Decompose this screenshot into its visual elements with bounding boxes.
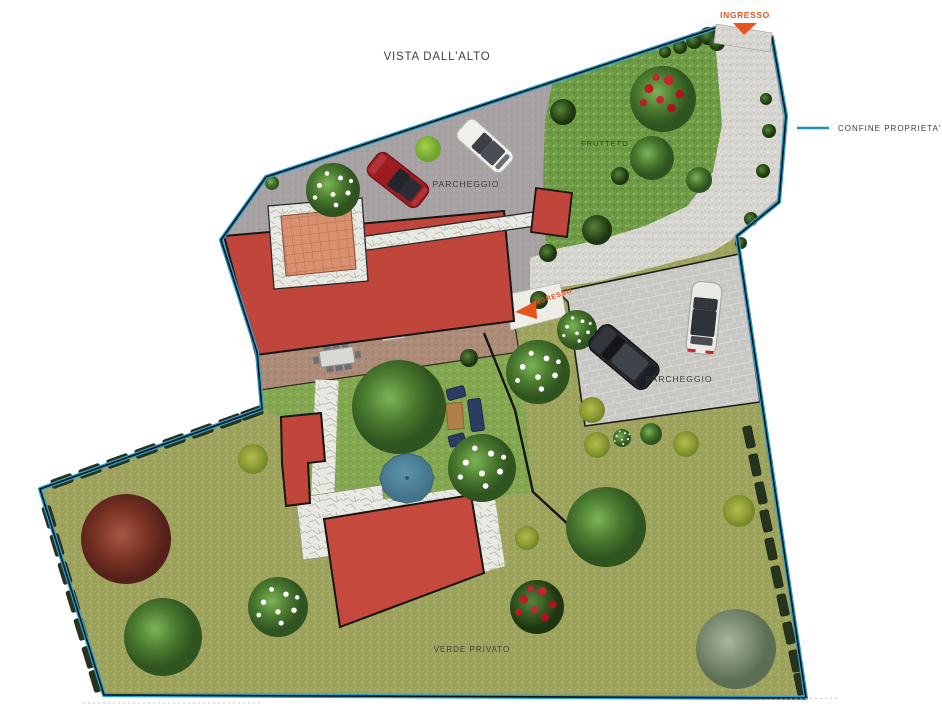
- garage-roof: [531, 188, 572, 237]
- tree: [723, 495, 755, 527]
- tree: [630, 136, 674, 180]
- road-shrub: [762, 124, 776, 138]
- patio-terracotta: [281, 209, 356, 276]
- page-title: VISTA DALL'ALTO: [384, 51, 491, 63]
- pool-drain: [405, 476, 409, 480]
- entrance-top-label: INGRESSO: [720, 10, 770, 20]
- flower-bush: [306, 163, 360, 217]
- flower-bush: [613, 429, 631, 447]
- tree: [415, 136, 441, 162]
- tree: [550, 99, 576, 125]
- flower-bush: [506, 340, 570, 404]
- tree: [81, 494, 171, 584]
- tree: [582, 215, 612, 245]
- parking-right-label: PARCHEGGIO: [646, 374, 713, 384]
- tree: [611, 167, 629, 185]
- flower-bush: [248, 577, 308, 637]
- shrub: [460, 349, 478, 367]
- tree: [515, 526, 539, 550]
- orchard-label: FRUTTETO: [581, 139, 629, 148]
- legend-label: CONFINE PROPRIETA': [838, 124, 941, 133]
- tree: [696, 609, 776, 689]
- deck-mat: [446, 402, 464, 429]
- tree: [686, 167, 712, 193]
- tree: [539, 244, 557, 262]
- tree: [238, 444, 268, 474]
- tree: [352, 360, 446, 454]
- parking-upper-label: PARCHEGGIO: [433, 179, 500, 189]
- flower-bush: [448, 434, 516, 502]
- flower-bush: [510, 580, 564, 634]
- tree: [566, 487, 646, 567]
- tree: [584, 432, 610, 458]
- road-shrub: [760, 93, 772, 105]
- road-shrub: [756, 164, 770, 178]
- site-plan-svg: CONFINE PROPRIETA' VISTA DALL'ALTO INGRE…: [0, 0, 942, 720]
- tree: [579, 397, 605, 423]
- tree: [673, 431, 699, 457]
- tree: [124, 598, 202, 676]
- tree: [640, 423, 662, 445]
- private-green-label: VERDE PRIVATO: [434, 645, 511, 654]
- legend: CONFINE PROPRIETA': [797, 124, 941, 133]
- site-plan-page: CONFINE PROPRIETA' VISTA DALL'ALTO INGRE…: [0, 0, 942, 720]
